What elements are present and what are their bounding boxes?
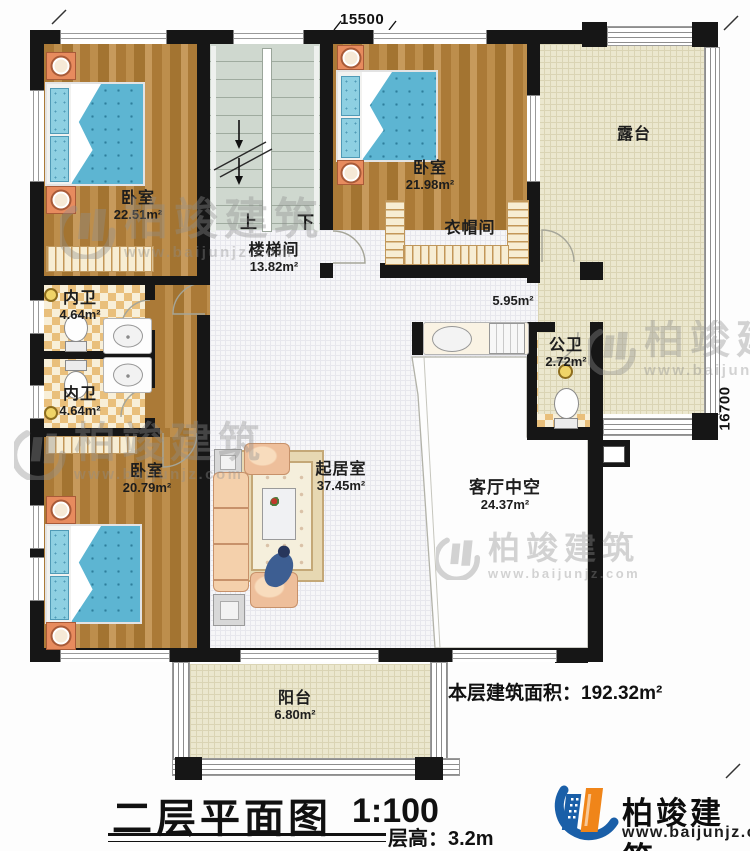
wall-stair-right (320, 44, 333, 230)
floor-area-value: 192.32m² (581, 683, 662, 704)
room-label-public-bath: 公卫2.72m² (545, 337, 586, 370)
window-top-bedroom1 (60, 30, 167, 44)
window-left-bedroom3-b (30, 557, 44, 601)
room-label-inner-bath-1: 内卫4.64m² (59, 290, 100, 323)
wardrobe-bedroom3 (46, 436, 137, 454)
watermark-logo-icon (588, 325, 638, 375)
balcony-column (415, 757, 443, 780)
room-label-hallway: 5.95m² (492, 294, 533, 309)
window-bottom-bedroom3 (60, 650, 170, 662)
nightstand (46, 622, 76, 650)
window-bedroom2-terrace (527, 95, 540, 182)
window-left-bedroom1 (30, 90, 44, 182)
stair-edge (314, 46, 319, 232)
wall-vanity-left (412, 322, 423, 355)
floor-area-label: 本层建筑面积： (448, 683, 581, 704)
cloakroom-wardrobe-right (507, 200, 529, 265)
wall-publicbath-top (527, 322, 555, 332)
lamp-icon (51, 626, 72, 647)
terrace-column (692, 22, 718, 47)
bed-bedroom3 (45, 524, 142, 624)
room-label-terrace: 露台 (617, 126, 651, 144)
nightstand (337, 160, 364, 185)
water-heater (489, 323, 525, 354)
terrace-column (582, 22, 607, 47)
terrace-top-railing (607, 26, 694, 46)
lamp-icon (51, 190, 72, 211)
cloakroom-wardrobe-bottom (403, 245, 509, 265)
window-left-bath2 (30, 385, 44, 419)
room-label-balcony: 阳台6.80m² (274, 690, 315, 723)
floor-area-text: 本层建筑面积：192.32m² (448, 678, 662, 705)
bed-bedroom1 (45, 82, 145, 186)
balcony-column (175, 757, 202, 780)
dimension-right: 16700 (717, 386, 734, 430)
bed-pillow-column (47, 84, 72, 184)
coffee-table (262, 488, 296, 540)
stair-stringer (262, 48, 272, 232)
balcony-left-railing (172, 662, 190, 762)
wall-right-lower (588, 437, 603, 662)
nightstand (46, 52, 76, 80)
title-underline (108, 833, 386, 842)
wall-stair-right-stub (320, 263, 333, 278)
terrace-column (692, 413, 718, 440)
wall-bath-right-a (145, 285, 155, 300)
brand-logo-icon (534, 780, 622, 848)
terrace-bottom-railing (603, 418, 694, 436)
duct-opening (603, 446, 625, 463)
lamp-icon (340, 162, 361, 183)
sofa-main (213, 472, 249, 592)
window-left-bath1 (30, 300, 44, 334)
window-left-bedroom3-a (30, 505, 44, 549)
stairs-up-label: 上 (240, 208, 257, 233)
wall-mid-vertical-upper (197, 44, 210, 285)
floor-drain-icon (44, 288, 58, 302)
room-label-inner-bath-2: 内卫4.64m² (59, 386, 100, 419)
vestibule-floor (155, 285, 197, 437)
room-label-stairwell: 楼梯间13.82m² (248, 242, 299, 275)
door-gap-patch (197, 285, 210, 315)
window-bottom-right (452, 650, 557, 662)
bed-sheet (362, 72, 392, 160)
room-label-bedroom-bottom-left: 卧室20.79m² (123, 463, 171, 496)
nightstand (46, 496, 76, 524)
window-top-stairwell (233, 30, 304, 44)
bed-sheet (71, 526, 101, 622)
balcony-right-railing (430, 662, 448, 762)
stairs-down-label: 下 (297, 208, 314, 233)
floor-drain-icon (44, 406, 58, 420)
bathroom-sink (103, 357, 152, 393)
nightstand (46, 186, 76, 214)
wall-bedroom1-bottom (44, 276, 210, 285)
nightstand (337, 45, 364, 70)
toilet (552, 388, 579, 430)
wall-bottom-column (555, 648, 588, 663)
room-label-bedroom-top-left: 卧室22.51m² (114, 190, 162, 223)
armchair-top (244, 443, 290, 475)
stair-edge (211, 46, 216, 232)
room-label-living-room: 起居室37.45m² (315, 461, 366, 494)
floor-plan: 卧室22.51m² 上 下 楼梯间13.82m² 卧室21.98m² 衣帽间 露… (0, 0, 750, 851)
bed-sheet (71, 84, 101, 184)
lamp-icon (51, 56, 72, 77)
wardrobe-bedroom1 (46, 246, 154, 272)
bed-bedroom2 (336, 70, 438, 162)
bed-pillow-column (47, 526, 72, 622)
side-table (213, 594, 245, 626)
room-label-bedroom-top-middle: 卧室21.98m² (406, 160, 454, 193)
room-label-living-void: 客厅中空24.37m² (469, 478, 541, 512)
wall-terrace-corner (580, 262, 603, 280)
vanity-sink-basin (432, 326, 472, 352)
bathroom-sink (103, 318, 152, 354)
lamp-icon (340, 47, 361, 68)
wall-bedroom2-bottom (380, 263, 527, 278)
dimension-top: 15500 (340, 11, 384, 28)
cloakroom-wardrobe-left (385, 200, 405, 265)
door-gap-patch (160, 428, 197, 437)
brand-website: www.baijunjz.com (622, 824, 750, 842)
bed-pillow-column (338, 72, 363, 160)
wall-mid-vertical-lower (197, 315, 210, 648)
lamp-icon (51, 500, 72, 521)
balcony-sliding-door (240, 650, 379, 662)
room-label-cloakroom: 衣帽间 (444, 220, 495, 238)
watermark-clip: 柏竣建筑www.baijunjz.com (588, 320, 750, 390)
window-top-bedroom2 (373, 30, 487, 44)
floor-height-text: 层高：3.2m (388, 822, 494, 851)
